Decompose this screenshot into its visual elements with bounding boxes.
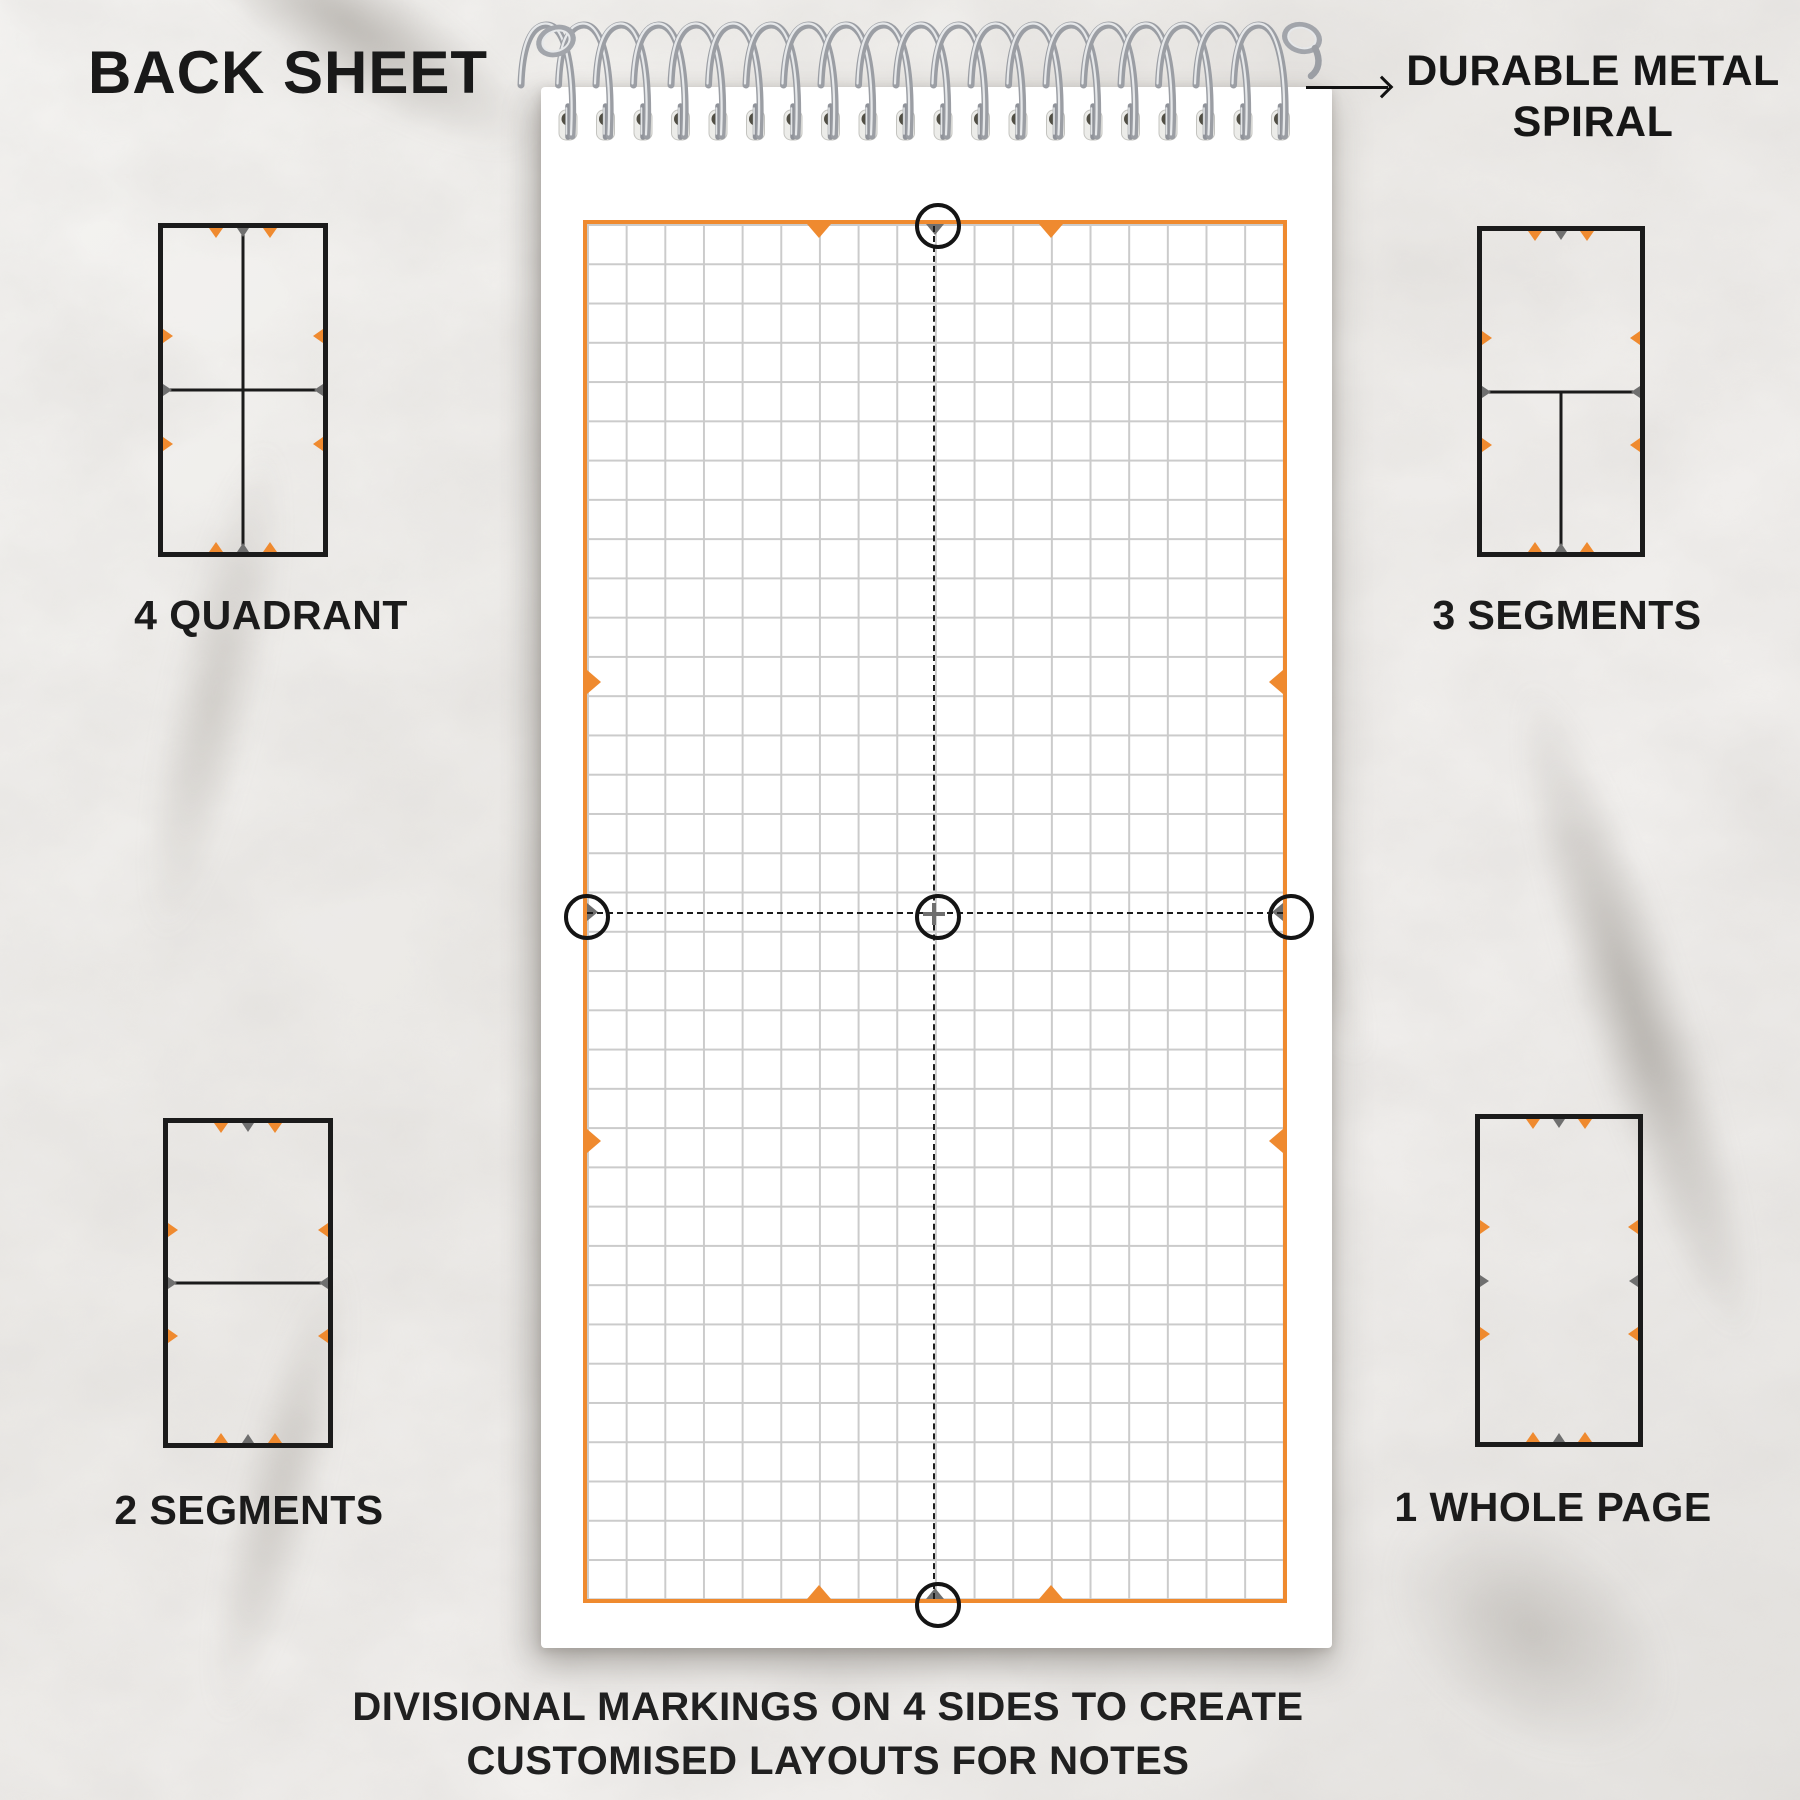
third-marker-icon <box>1628 1327 1638 1341</box>
half-marker-icon <box>1555 231 1567 240</box>
half-marker-icon <box>319 1277 328 1289</box>
third-marker-icon <box>1528 542 1542 552</box>
third-marker-icon <box>1480 1220 1490 1234</box>
layout-label-three-segments: 3 SEGMENTS <box>1432 592 1701 639</box>
third-marker-icon <box>263 542 277 552</box>
third-marker-icon <box>1482 331 1492 345</box>
third-marker-icon <box>1269 1129 1283 1153</box>
third-marker-icon <box>163 329 173 343</box>
spiral-callout-line2: SPIRAL <box>1392 97 1794 148</box>
half-marker-icon <box>1555 543 1567 552</box>
third-marker-icon <box>1578 1119 1592 1129</box>
half-marker-icon <box>168 1277 177 1289</box>
third-marker-icon <box>1480 1327 1490 1341</box>
third-marker-icon <box>1269 670 1283 694</box>
third-marker-icon <box>587 670 601 694</box>
half-marker-icon <box>163 384 172 396</box>
third-marker-icon <box>1628 1220 1638 1234</box>
third-marker-icon <box>587 1129 601 1153</box>
half-marker-icon <box>1631 386 1640 398</box>
top-center-marker-circle <box>915 203 961 249</box>
half-marker-icon <box>1553 1119 1565 1128</box>
layout-label-four-quadrant: 4 QUADRANT <box>134 592 408 639</box>
half-marker-icon <box>1553 1433 1565 1442</box>
page-title: BACK SHEET <box>88 38 488 107</box>
third-marker-icon <box>268 1123 282 1133</box>
third-marker-icon <box>209 228 223 238</box>
third-marker-icon <box>214 1433 228 1443</box>
layout-diagram-two-segments <box>163 1118 333 1448</box>
third-marker-icon <box>263 228 277 238</box>
third-marker-icon <box>168 1223 178 1237</box>
left-middle-marker-circle <box>564 894 610 940</box>
divider-horizontal-full <box>163 389 323 392</box>
caption: DIVISIONAL MARKINGS ON 4 SIDES TO CREATE… <box>352 1680 1303 1788</box>
layout-diagram-three-segments <box>1477 226 1645 557</box>
layout-diagram-one-whole-page <box>1475 1114 1643 1447</box>
right-middle-marker-circle <box>1268 894 1314 940</box>
third-marker-icon <box>1526 1119 1540 1129</box>
third-marker-icon <box>1578 1432 1592 1442</box>
center-marker-circle <box>915 894 961 940</box>
product-infographic: BACK SHEET DURABLE METAL SPIRAL 4 QUADRA… <box>0 0 1800 1800</box>
caption-line1: DIVISIONAL MARKINGS ON 4 SIDES TO CREATE <box>352 1680 1303 1734</box>
spiral-callout-line1: DURABLE METAL <box>1392 46 1794 97</box>
third-marker-icon <box>1039 224 1063 238</box>
divider-vertical-bottom-half <box>1560 392 1563 553</box>
center-cross-icon <box>932 903 936 925</box>
half-marker-icon <box>314 384 323 396</box>
third-marker-icon <box>318 1223 328 1237</box>
half-marker-icon <box>1480 1275 1489 1287</box>
third-marker-icon <box>1526 1432 1540 1442</box>
half-marker-icon <box>237 228 249 237</box>
third-marker-icon <box>1528 231 1542 241</box>
third-marker-icon <box>268 1433 282 1443</box>
third-marker-icon <box>214 1123 228 1133</box>
third-marker-icon <box>168 1329 178 1343</box>
third-marker-icon <box>1630 438 1640 452</box>
third-marker-icon <box>807 1585 831 1599</box>
half-marker-icon <box>242 1123 254 1132</box>
third-marker-icon <box>1039 1585 1063 1599</box>
bottom-center-marker-circle <box>915 1582 961 1628</box>
divider-horizontal-full <box>168 1282 328 1285</box>
caption-line2: CUSTOMISED LAYOUTS FOR NOTES <box>352 1734 1303 1788</box>
third-marker-icon <box>1580 231 1594 241</box>
third-marker-icon <box>313 329 323 343</box>
half-marker-icon <box>242 1434 254 1443</box>
half-marker-icon <box>237 543 249 552</box>
layout-label-one-whole-page: 1 WHOLE PAGE <box>1394 1484 1711 1531</box>
half-marker-icon <box>1482 386 1491 398</box>
third-marker-icon <box>1580 542 1594 552</box>
spiral-callout-label: DURABLE METAL SPIRAL <box>1392 46 1794 148</box>
layout-diagram-four-quadrant <box>158 223 328 557</box>
third-marker-icon <box>318 1329 328 1343</box>
third-marker-icon <box>807 224 831 238</box>
layout-label-two-segments: 2 SEGMENTS <box>114 1487 383 1534</box>
third-marker-icon <box>313 437 323 451</box>
third-marker-icon <box>1630 331 1640 345</box>
third-marker-icon <box>1482 438 1492 452</box>
third-marker-icon <box>209 542 223 552</box>
third-marker-icon <box>163 437 173 451</box>
half-marker-icon <box>1629 1275 1638 1287</box>
